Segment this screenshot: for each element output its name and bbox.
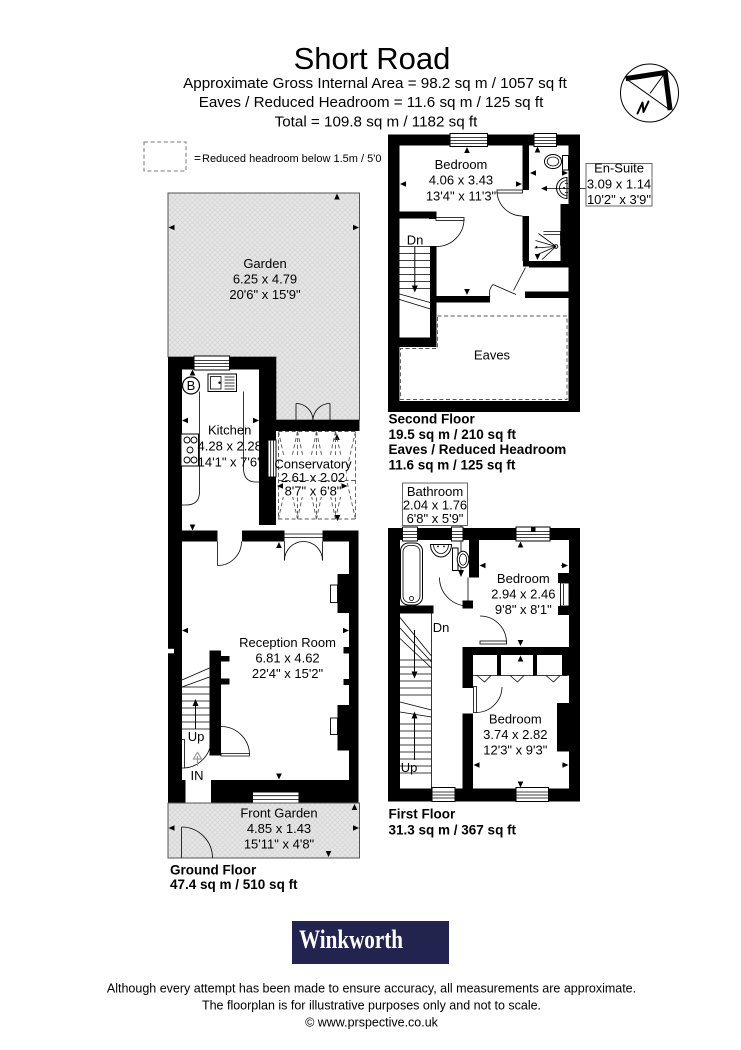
svg-text:Approximate Gross Internal Are: Approximate Gross Internal Area = 98.2 s… [183,75,567,92]
svg-text:31.3 sq m / 367 sq ft: 31.3 sq m / 367 sq ft [389,823,517,838]
svg-text:10'2" x 3'9": 10'2" x 3'9" [587,192,651,207]
svg-text:4.06 x 3.43: 4.06 x 3.43 [429,173,493,188]
svg-text:3.09 x 1.14: 3.09 x 1.14 [587,177,651,192]
svg-text:=: = [194,151,201,165]
svg-text:Eaves / Reduced Headroom = 11.: Eaves / Reduced Headroom = 11.6 sq m / 1… [199,94,544,111]
svg-text:47.4 sq m / 510 sq ft: 47.4 sq m / 510 sq ft [170,877,298,892]
svg-text:11.6 sq m / 125 sq ft: 11.6 sq m / 125 sq ft [389,458,516,473]
svg-text:9'8" x 8'1": 9'8" x 8'1" [495,602,552,617]
svg-text:15'11" x 4'8": 15'11" x 4'8" [244,837,315,852]
svg-text:19.5 sq m / 210 sq ft: 19.5 sq m / 210 sq ft [389,427,517,442]
svg-text:The floorplan is for illustrat: The floorplan is for illustrative purpos… [202,999,541,1013]
svg-text:Reduced headroom below 1.5m /: Reduced headroom below 1.5m / 5'0 [202,153,381,165]
svg-text:Dn: Dn [407,233,424,248]
svg-text:Kitchen: Kitchen [208,423,251,438]
svg-text:2.94 x 2.46: 2.94 x 2.46 [491,587,555,602]
svg-text:14'1" x 7'6": 14'1" x 7'6" [198,455,262,470]
svg-text:4.28 x 2.28: 4.28 x 2.28 [198,439,262,454]
svg-text:22'4" x 15'2": 22'4" x 15'2" [252,666,324,681]
svg-text:6'8" x 5'9": 6'8" x 5'9" [407,511,464,526]
svg-text:Reception Room: Reception Room [239,635,336,650]
svg-text:Up: Up [401,760,418,775]
svg-text:Eaves: Eaves [474,348,511,363]
svg-text:12'3" x 9'3": 12'3" x 9'3" [483,743,547,758]
svg-text:Dn: Dn [433,620,450,635]
svg-text:20'6" x 15'9": 20'6" x 15'9" [229,287,301,302]
svg-text:Second Floor: Second Floor [389,412,476,427]
svg-text:Short Road: Short Road [294,41,451,76]
svg-text:IN: IN [191,768,204,783]
svg-text:8'7" x 6'8": 8'7" x 6'8" [285,484,342,499]
svg-text:Winkworth: Winkworth [299,925,403,954]
svg-text:13'4" x 11'3": 13'4" x 11'3" [426,188,497,203]
svg-text:Ground Floor: Ground Floor [170,863,257,878]
svg-text:B: B [187,378,196,393]
svg-text:Total = 109.8 sq m / 1182 sq f: Total = 109.8 sq m / 1182 sq ft [275,113,479,130]
svg-text:6.25 x 4.79: 6.25 x 4.79 [233,272,297,287]
svg-text:4.85 x 1.43: 4.85 x 1.43 [247,821,311,836]
svg-text:Bedroom: Bedroom [435,157,488,172]
svg-text:Garden: Garden [243,256,286,271]
svg-text:Eaves / Reduced Headroom: Eaves / Reduced Headroom [389,442,567,457]
svg-text:En-Suite: En-Suite [594,161,644,176]
svg-text:6.81 x 4.62: 6.81 x 4.62 [255,651,319,666]
svg-text:© www.prspective.co.uk: © www.prspective.co.uk [305,1016,439,1030]
svg-text:Bedroom: Bedroom [497,571,550,586]
svg-text:Front Garden: Front Garden [240,806,317,821]
svg-text:3.74 x 2.82: 3.74 x 2.82 [483,727,547,742]
svg-text:Although every attempt has bee: Although every attempt has been made to … [107,982,636,996]
svg-text:First Floor: First Floor [389,807,456,822]
svg-text:Bedroom: Bedroom [489,712,542,727]
svg-text:Up: Up [188,729,205,744]
